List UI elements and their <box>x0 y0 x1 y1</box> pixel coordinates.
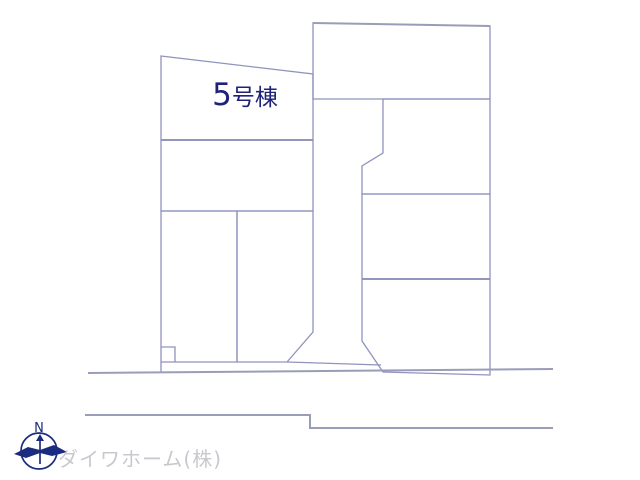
compass-north-label: N <box>26 421 52 436</box>
lot-5-label-number: 5 <box>212 80 232 111</box>
lot-bottom-left <box>161 211 237 362</box>
lot-5-label: 5号棟 <box>178 80 312 124</box>
lot-top-rect-top-edge <box>313 23 490 26</box>
road-upper-edge <box>88 369 553 373</box>
lot-right-bottom <box>362 279 490 375</box>
driveway-mouth-line <box>287 362 381 365</box>
lot-right-upper <box>362 99 490 194</box>
site-plan-drawing <box>0 0 640 480</box>
road-lower-edge <box>85 415 553 428</box>
lot-5-label-suffix: 号棟 <box>232 87 278 110</box>
site-plan-image: 5号棟 N ダイワホーム(株) <box>0 0 640 480</box>
lot-top-rect <box>313 23 490 99</box>
lot-right-middle <box>362 194 490 279</box>
corner-notch <box>161 347 175 362</box>
lot-middle-left <box>161 140 313 211</box>
builder-watermark: ダイワホーム(株) <box>58 443 222 472</box>
lot-bottom-right <box>237 211 313 362</box>
